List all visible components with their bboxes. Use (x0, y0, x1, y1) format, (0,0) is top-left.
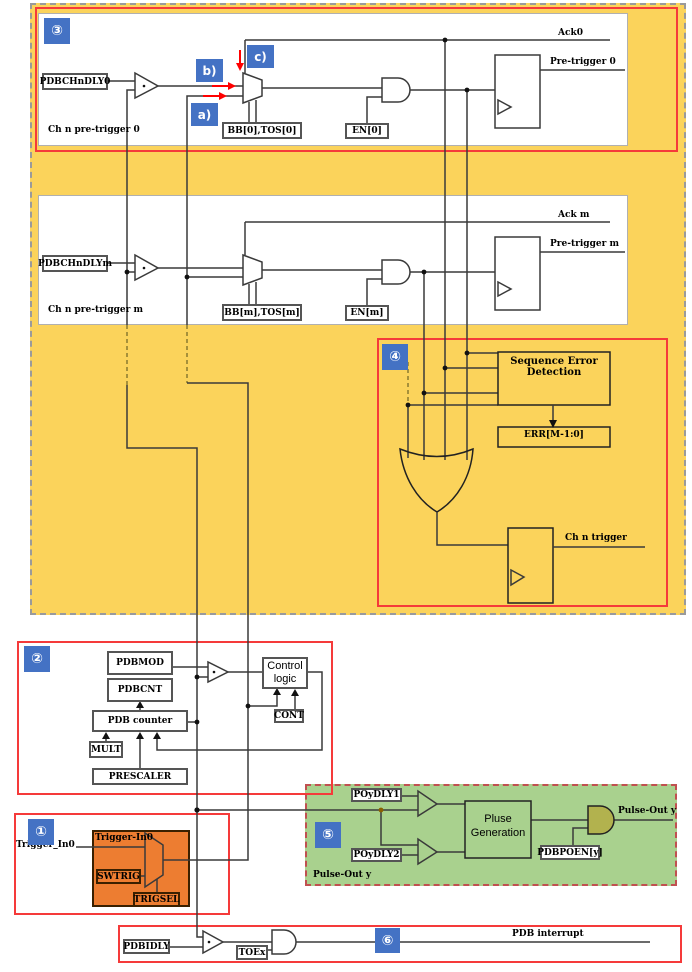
control-logic-line2: logic (274, 673, 297, 686)
pdbpoen-box: PDBPOEN[y] (540, 845, 600, 860)
pdbmod-label: PDBMOD (116, 658, 164, 668)
trigger-clock-icon (511, 570, 524, 585)
control-logic-box: Control logic (262, 657, 308, 689)
section3-badge: ③ (44, 18, 70, 44)
section2-badge: ② (24, 646, 50, 672)
mult-label: MULT (91, 745, 121, 755)
pulse-gen-line2: Generation (471, 826, 525, 840)
callout-c-badge: c) (247, 45, 274, 68)
section1-badge-label: ① (35, 824, 47, 840)
arrow-c-icon (236, 50, 244, 71)
channelm-caption: Ch n pre-trigger m (48, 305, 143, 315)
section6-comparator (203, 931, 223, 953)
section4-badge: ④ (382, 344, 408, 370)
or-output (437, 512, 508, 545)
en0-box: EN[0] (345, 123, 389, 139)
pdbidly-label: PDBIDLY (123, 942, 169, 952)
arrow-b-icon (212, 82, 236, 90)
pdb-block-diagram: ③ b) c) a) PDBCHnDLY0 Ch n pre-trigger 0… (0, 0, 692, 972)
toex-label: TOEx (239, 948, 266, 958)
pulse-out-bottom-label: Pulse-Out y (313, 870, 371, 880)
section5-badge: ⑤ (315, 822, 341, 848)
trigsel-box: TRIGSEL (133, 892, 180, 907)
section6-badge-label: ⑥ (382, 933, 394, 949)
channelm-mux (243, 255, 262, 285)
poydly2-box: POyDLY2 (351, 848, 402, 862)
swtrig-box: SWTRIG (96, 869, 141, 884)
ch-trigger-label: Ch n trigger (565, 533, 627, 543)
section6-and-gate (272, 930, 296, 954)
prescaler-box: PRESCALER (92, 768, 188, 785)
counter-bus (127, 90, 418, 937)
trigsel-label: TRIGSEL (134, 895, 180, 905)
pdbmod-box: PDBMOD (107, 651, 173, 675)
swtrig-label: SWTRIG (97, 872, 140, 882)
channel0-mux (243, 73, 262, 103)
bb-tos0-label: BB[0],TOS[0] (228, 126, 297, 136)
pdbchndlym-box: PDBCHnDLYm (42, 255, 108, 272)
channel0-comparator (135, 73, 158, 98)
toex-box: TOEx (236, 945, 268, 960)
poydly1-comparator (418, 791, 437, 816)
pulse-gen-line1: Pluse (484, 812, 512, 826)
poydly2-label: POyDLY2 (353, 850, 399, 860)
section2-comparator (208, 662, 228, 682)
callout-c-label: c) (254, 50, 267, 64)
callout-a-badge: a) (191, 103, 218, 126)
bb-tos0-box: BB[0],TOS[0] (222, 122, 302, 139)
bb-tosm-label: BB[m],TOS[m] (224, 308, 299, 318)
callout-a-label: a) (198, 108, 212, 122)
enm-box: EN[m] (345, 305, 389, 321)
ackm-label: Ack m (558, 210, 589, 220)
pdbcnt-label: PDBCNT (118, 685, 162, 695)
section1-badge: ① (28, 819, 54, 845)
poydly2-comparator (418, 839, 437, 864)
cont-label: CONT (274, 711, 304, 721)
sed-line2: Detection (527, 367, 581, 378)
section2-badge-label: ② (31, 651, 43, 667)
err-caption: ERR[M-1:0] (498, 430, 610, 440)
channel0-and-gate (382, 78, 410, 102)
pdbchndlym-label: PDBCHnDLYm (38, 259, 112, 269)
pdbidly-box: PDBIDLY (123, 939, 170, 954)
callout-b-badge: b) (196, 59, 223, 82)
section5-wires (402, 796, 673, 855)
section4-badge-label: ④ (389, 349, 401, 365)
pdb-interrupt-label: PDB interrupt (512, 929, 584, 939)
channel0-caption: Ch n pre-trigger 0 (48, 125, 140, 135)
section6-badge: ⑥ (375, 928, 400, 953)
pulse-generation-caption: Pluse Generation (465, 812, 531, 840)
ack0-label: Ack0 (558, 28, 583, 38)
bb-tosm-box: BB[m],TOS[m] (222, 304, 302, 321)
or-gate (400, 449, 473, 512)
pdb-counter-label: PDB counter (108, 716, 173, 726)
trigger-bus (163, 96, 277, 860)
pdbcnt-box: PDBCNT (107, 678, 173, 702)
channelm-comparator (135, 255, 158, 280)
channelm-and-gate (382, 260, 410, 284)
poydly1-label: POyDLY1 (353, 790, 399, 800)
channel0-flipflop (495, 55, 540, 128)
control-logic-line1: Control (267, 660, 302, 673)
pdb-counter-box: PDB counter (92, 710, 188, 732)
pre-triggerm-label: Pre-trigger m (550, 239, 619, 249)
prescaler-label: PRESCALER (109, 772, 171, 782)
section3-badge-label: ③ (51, 23, 63, 39)
trigger-flipflop (508, 528, 553, 603)
cont-box: CONT (274, 709, 304, 723)
section5-badge-label: ⑤ (322, 827, 334, 843)
sequence-error-taps (408, 40, 498, 460)
poydly1-box: POyDLY1 (351, 788, 402, 802)
mult-box: MULT (89, 741, 123, 758)
pdbpoen-label: PDBPOEN[y] (537, 848, 603, 858)
pre-trigger0-label: Pre-trigger 0 (550, 57, 616, 67)
pulse-out-right-label: Pulse-Out y (618, 806, 676, 816)
pdbchndly0-box: PDBCHnDLY0 (42, 73, 108, 90)
en0-label: EN[0] (352, 126, 382, 136)
trigger-in0-label: Trigger-In0 (95, 833, 153, 843)
callout-b-label: b) (202, 64, 216, 78)
enm-label: EN[m] (350, 308, 383, 318)
sequence-error-caption: Sequence Error Detection (498, 356, 610, 378)
wiring-layer (0, 0, 692, 972)
channel0-wires (108, 40, 625, 123)
sed-line1: Sequence Error (510, 356, 598, 367)
channelm-wires (108, 222, 625, 305)
arrow-a-icon (203, 92, 227, 100)
channelm-flipflop (495, 237, 540, 310)
section5-and-gate (588, 806, 614, 834)
pdbchndly0-label: PDBCHnDLY0 (40, 77, 111, 87)
